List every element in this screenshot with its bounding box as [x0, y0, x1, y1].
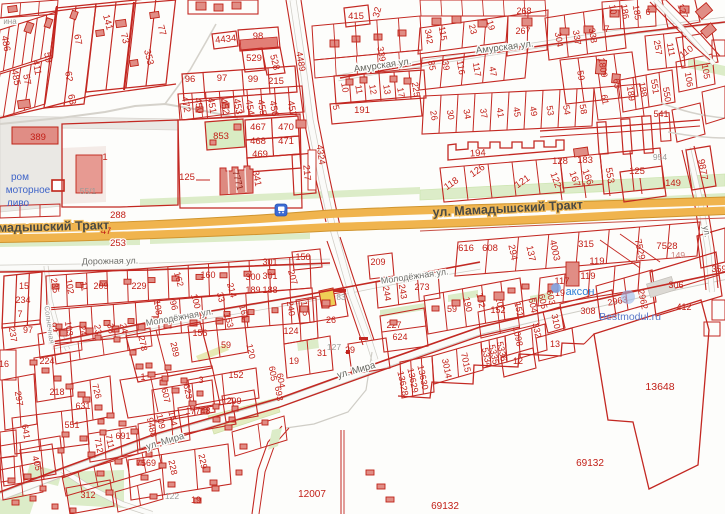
svg-text:273: 273	[414, 282, 429, 292]
svg-text:529: 529	[246, 53, 262, 64]
svg-text:ул.: ул.	[701, 225, 713, 238]
svg-text:1: 1	[140, 372, 145, 382]
svg-text:ина: ина	[3, 17, 17, 26]
svg-text:253: 253	[110, 238, 126, 249]
svg-text:59: 59	[221, 340, 231, 350]
svg-text:12007: 12007	[298, 489, 326, 500]
svg-text:217: 217	[300, 164, 312, 181]
svg-text:19: 19	[289, 356, 299, 366]
svg-text:29: 29	[345, 345, 355, 355]
svg-text:267: 267	[515, 26, 530, 36]
svg-text:299: 299	[226, 396, 241, 406]
svg-text:312: 312	[80, 490, 95, 500]
svg-text:мадышский Тракт: мадышский Тракт	[0, 218, 109, 235]
svg-text:128: 128	[552, 156, 568, 167]
svg-text:156: 156	[192, 328, 207, 338]
svg-text:ром: ром	[11, 172, 29, 183]
svg-text:83: 83	[337, 293, 346, 302]
svg-text:47: 47	[487, 66, 499, 78]
svg-text:152: 152	[490, 305, 505, 315]
svg-text:234: 234	[15, 295, 30, 305]
svg-text:631: 631	[75, 401, 90, 411]
svg-text:127: 127	[327, 342, 341, 352]
svg-text:229: 229	[131, 281, 146, 291]
svg-text:97: 97	[23, 325, 33, 335]
svg-text:69132: 69132	[431, 501, 459, 512]
svg-text:11: 11	[353, 84, 364, 95]
svg-text:12: 12	[367, 84, 379, 96]
svg-text:189: 189	[245, 285, 260, 295]
svg-text:300: 300	[245, 272, 260, 282]
svg-text:608: 608	[482, 243, 498, 254]
svg-text:125: 125	[179, 172, 195, 183]
svg-text:55/1: 55/1	[80, 186, 97, 196]
svg-text:97: 97	[217, 73, 228, 84]
svg-text:150: 150	[295, 252, 310, 262]
svg-text:224: 224	[39, 356, 54, 366]
svg-text:45: 45	[511, 106, 523, 118]
svg-text:19: 19	[191, 495, 201, 505]
svg-text:62: 62	[62, 70, 75, 82]
svg-text:59: 59	[41, 51, 54, 63]
svg-text:183: 183	[577, 155, 593, 166]
svg-text:4434: 4434	[215, 33, 237, 46]
svg-text:467: 467	[250, 122, 266, 133]
svg-text:486: 486	[0, 35, 12, 53]
svg-text:470: 470	[278, 122, 294, 133]
svg-text:191: 191	[354, 105, 370, 116]
svg-text:13: 13	[381, 84, 393, 96]
svg-text:11: 11	[78, 281, 89, 292]
svg-text:13648: 13648	[645, 381, 674, 393]
svg-text:10: 10	[607, 4, 619, 16]
svg-text:160: 160	[200, 270, 215, 280]
svg-text:853: 853	[213, 131, 229, 142]
svg-text:624: 624	[392, 332, 407, 342]
svg-text:218: 218	[49, 387, 64, 397]
svg-text:315: 315	[578, 239, 594, 250]
svg-text:69132: 69132	[576, 458, 604, 469]
svg-text:Bestmodul.ru: Bestmodul.ru	[599, 311, 661, 323]
svg-text:53: 53	[544, 105, 556, 117]
svg-text:7569: 7569	[136, 458, 156, 468]
svg-text:691: 691	[115, 431, 130, 441]
svg-text:288: 288	[110, 210, 126, 221]
svg-text:61: 61	[599, 94, 611, 106]
svg-text:17748: 17748	[185, 406, 210, 416]
svg-text:3: 3	[198, 375, 203, 385]
svg-text:268: 268	[516, 6, 531, 16]
svg-text:59: 59	[575, 70, 587, 82]
svg-text:54: 54	[561, 104, 573, 116]
svg-text:541: 541	[653, 109, 668, 119]
svg-text:194: 194	[470, 147, 487, 159]
svg-text:15: 15	[19, 281, 29, 291]
svg-text:149: 149	[665, 178, 681, 189]
svg-text:26: 26	[428, 110, 440, 122]
svg-text:17: 17	[395, 87, 407, 99]
svg-text:7: 7	[17, 309, 22, 319]
svg-text:152: 152	[228, 370, 243, 380]
svg-text:209: 209	[370, 257, 385, 267]
svg-text:471: 471	[278, 136, 294, 147]
svg-text:188: 188	[262, 285, 277, 295]
svg-text:16: 16	[0, 359, 9, 369]
svg-text:37: 37	[478, 108, 490, 120]
svg-text:аксон: аксон	[566, 286, 595, 298]
svg-text:35: 35	[426, 60, 438, 72]
svg-text:209: 209	[93, 281, 108, 291]
svg-text:39: 39	[440, 60, 452, 72]
svg-text:7: 7	[604, 24, 609, 34]
svg-text:моторное: моторное	[6, 185, 51, 196]
svg-text:26: 26	[326, 315, 336, 325]
svg-text:31: 31	[317, 348, 327, 358]
svg-text:98: 98	[253, 31, 264, 42]
svg-text:30: 30	[445, 109, 457, 121]
svg-text:119: 119	[589, 256, 604, 267]
svg-text:215: 215	[268, 76, 284, 87]
svg-text:122: 122	[165, 491, 179, 501]
svg-text:34: 34	[461, 108, 473, 120]
svg-text:41: 41	[495, 107, 507, 119]
svg-text:ливо: ливо	[7, 198, 30, 209]
svg-text:301: 301	[262, 271, 277, 281]
svg-text:63: 63	[65, 93, 78, 106]
svg-text:389: 389	[30, 132, 46, 143]
svg-text:551: 551	[64, 420, 79, 430]
svg-text:58: 58	[578, 103, 590, 115]
svg-text:67: 67	[71, 33, 84, 45]
svg-text:308: 308	[580, 306, 595, 316]
svg-text:616: 616	[458, 243, 474, 254]
svg-text:12: 12	[513, 356, 523, 366]
svg-text:469: 469	[252, 149, 268, 160]
svg-text:Дорожная ул.: Дорожная ул.	[82, 256, 139, 267]
svg-text:954: 954	[653, 152, 667, 162]
svg-text:125: 125	[629, 166, 645, 177]
svg-text:1: 1	[102, 152, 107, 163]
svg-text:124: 124	[283, 326, 298, 336]
svg-text:149: 149	[671, 250, 685, 260]
svg-text:13: 13	[550, 339, 560, 349]
svg-text:415: 415	[348, 11, 364, 22]
svg-text:119: 119	[580, 271, 595, 282]
svg-text:6: 6	[645, 7, 650, 17]
svg-text:468: 468	[250, 136, 266, 147]
svg-text:96: 96	[185, 74, 196, 85]
svg-text:99: 99	[248, 74, 259, 85]
svg-text:49: 49	[528, 105, 540, 117]
